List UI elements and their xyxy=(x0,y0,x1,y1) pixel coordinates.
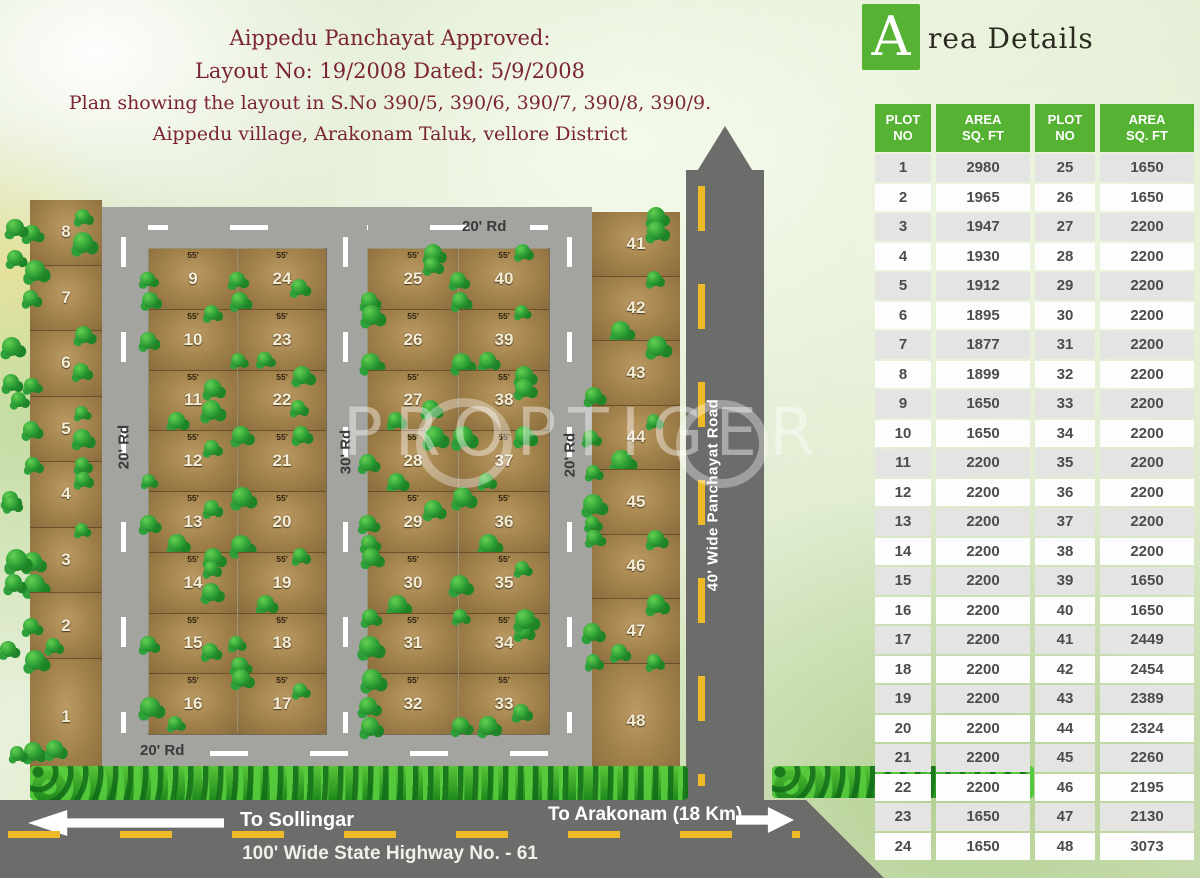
area-table-head-row: PLOT NOAREA SQ. FTPLOT NOAREA SQ. FT xyxy=(875,104,1194,152)
plot-dimension-label: 55' xyxy=(276,432,287,442)
tree-icon xyxy=(359,454,376,471)
tree-icon xyxy=(4,496,19,511)
plot-27: 55'27 xyxy=(368,370,458,431)
plot-43: 43 xyxy=(592,340,680,405)
table-row: 21965261650 xyxy=(875,184,1194,212)
plot-number: 3 xyxy=(61,550,70,570)
plot-47: 47 xyxy=(592,598,680,663)
plot-21: 55'21 xyxy=(238,430,326,491)
highway-center-dashes xyxy=(8,831,800,838)
tree-icon xyxy=(422,400,439,417)
tree-icon xyxy=(479,716,497,734)
tree-icon xyxy=(362,305,382,325)
tree-icon xyxy=(611,450,632,471)
tree-icon xyxy=(359,697,377,715)
tree-icon xyxy=(586,530,602,546)
plot-number: 24 xyxy=(273,269,292,289)
tree-icon xyxy=(10,746,24,760)
plot-number: 32 xyxy=(404,694,423,714)
plot-42: 42 xyxy=(592,276,680,341)
tree-icon xyxy=(515,561,529,575)
plot-dimension-label: 55' xyxy=(407,554,418,564)
tree-icon xyxy=(232,426,250,444)
table-row: 182200422454 xyxy=(875,656,1194,684)
plot-number: 41 xyxy=(627,234,646,254)
plot-33: 55'33 xyxy=(459,673,549,734)
road-right-label: 20' Rd xyxy=(562,433,579,477)
plot-dimension-label: 55' xyxy=(187,311,198,321)
plot-20: 55'20 xyxy=(238,491,326,552)
plot-dimension-label: 55' xyxy=(187,372,198,382)
area-table-header: PLOT NO xyxy=(1035,104,1095,152)
tree-icon xyxy=(142,474,155,487)
logo-letter: A xyxy=(872,10,911,64)
area-details-title: rea Details xyxy=(928,22,1094,55)
plot-number: 27 xyxy=(404,390,423,410)
plot-dimension-label: 55' xyxy=(498,311,509,321)
plot-23: 55'23 xyxy=(238,309,326,370)
tree-icon xyxy=(362,609,379,626)
tree-icon xyxy=(75,471,90,486)
plot-6: 6 xyxy=(30,330,102,396)
tree-icon xyxy=(75,326,93,344)
tree-icon xyxy=(585,387,602,404)
plot-25: 55'25 xyxy=(368,249,458,309)
plot-26: 55'26 xyxy=(368,309,458,370)
tree-icon xyxy=(424,500,442,518)
tree-icon xyxy=(293,426,309,442)
plot-number: 29 xyxy=(404,512,423,532)
plot-1: 1 xyxy=(30,658,102,775)
tree-icon xyxy=(362,669,382,689)
plot-number: 15 xyxy=(184,633,203,653)
area-table-body: 1298025165021965261650319472722004193028… xyxy=(875,154,1194,860)
tree-icon xyxy=(232,669,250,687)
table-row: 192200432389 xyxy=(875,685,1194,713)
plot-number: 33 xyxy=(495,694,514,714)
road-top-label: 20' Rd xyxy=(462,218,506,235)
plot-number: 46 xyxy=(627,556,646,576)
plot-number: 21 xyxy=(273,451,292,471)
plot-number: 2 xyxy=(61,616,70,636)
plot-4: 4 xyxy=(30,461,102,527)
plot-45: 45 xyxy=(592,469,680,534)
title-line-4: Aippedu village, Arakonam Taluk, vellore… xyxy=(55,123,725,145)
table-row: 231650472130 xyxy=(875,803,1194,831)
table-row: 142200382200 xyxy=(875,538,1194,566)
tree-icon xyxy=(204,305,219,320)
tree-icon xyxy=(515,609,535,629)
plot-number: 22 xyxy=(273,390,292,410)
plot-dimension-label: 55' xyxy=(407,493,418,503)
plot-number: 7 xyxy=(61,288,70,308)
plot-16: 55'16 xyxy=(149,673,237,734)
direction-east-label: To Arakonam (18 Km) xyxy=(548,804,742,826)
plot-31: 55'31 xyxy=(368,613,458,674)
table-row: 162200401650 xyxy=(875,597,1194,625)
tree-icon xyxy=(142,292,158,308)
tree-icon xyxy=(611,644,627,660)
tree-icon xyxy=(515,426,534,445)
plot-41: 41 xyxy=(592,212,680,276)
plot-35: 55'35 xyxy=(459,552,549,613)
plot-48: 48 xyxy=(592,663,680,778)
tree-icon xyxy=(450,272,466,288)
plot-number: 8 xyxy=(61,222,70,242)
plot-29: 55'29 xyxy=(368,491,458,552)
plot-18: 55'18 xyxy=(238,613,326,674)
plot-number: 25 xyxy=(404,269,423,289)
block-b-left-column: 55'2555'2655'2755'2855'2955'3055'3155'32 xyxy=(368,249,458,734)
tree-icon xyxy=(647,221,666,240)
tree-icon xyxy=(453,609,467,623)
table-row: 51912292200 xyxy=(875,272,1194,300)
plot-number: 28 xyxy=(404,451,423,471)
plot-12: 55'12 xyxy=(149,430,237,491)
tree-icon xyxy=(229,272,245,288)
road-dashes xyxy=(343,237,348,747)
plot-dimension-label: 55' xyxy=(187,615,198,625)
table-row: 61895302200 xyxy=(875,302,1194,330)
tree-icon xyxy=(6,219,24,237)
plot-number: 31 xyxy=(404,633,423,653)
block-a: 55'955'1055'1155'1255'1355'1455'1555'16 … xyxy=(148,248,327,735)
plot-number: 42 xyxy=(627,298,646,318)
plot-dimension-label: 55' xyxy=(498,675,509,685)
road-dashes xyxy=(210,751,580,756)
plot-14: 55'14 xyxy=(149,552,237,613)
plot-dimension-label: 55' xyxy=(187,675,198,685)
state-highway: To Sollingar To Arakonam (18 Km) 100' Wi… xyxy=(0,800,884,878)
block-a-left-column: 55'955'1055'1155'1255'1355'1455'1555'16 xyxy=(149,249,237,734)
plot-number: 44 xyxy=(627,427,646,447)
tree-icon xyxy=(73,363,89,379)
plot-dimension-label: 55' xyxy=(498,432,509,442)
plot-5: 5 xyxy=(30,396,102,462)
panchayat-road-label: 40' Wide Panchayat Road xyxy=(705,399,722,592)
tree-icon xyxy=(46,638,61,653)
plot-number: 4 xyxy=(61,484,70,504)
plot-number: 19 xyxy=(273,573,292,593)
plot-number: 45 xyxy=(627,492,646,512)
direction-west-label: To Sollingar xyxy=(240,809,354,832)
plot-number: 18 xyxy=(273,633,292,653)
area-table-header: AREA SQ. FT xyxy=(1100,104,1194,152)
tree-icon xyxy=(257,595,274,612)
plot-46: 46 xyxy=(592,534,680,599)
panchayat-road xyxy=(686,170,764,802)
tree-icon xyxy=(231,292,248,309)
plot-dimension-label: 55' xyxy=(276,250,287,260)
tree-icon xyxy=(293,366,312,385)
tree-icon xyxy=(583,430,598,445)
tree-icon xyxy=(7,250,23,266)
plot-number: 20 xyxy=(273,512,292,532)
plot-dimension-label: 55' xyxy=(407,432,418,442)
plot-dimension-label: 55' xyxy=(276,554,287,564)
plot-dimension-label: 55' xyxy=(187,493,198,503)
table-row: 122200362200 xyxy=(875,479,1194,507)
plot-32: 55'32 xyxy=(368,673,458,734)
plot-dimension-label: 55' xyxy=(407,372,418,382)
plot-dimension-label: 55' xyxy=(276,311,287,321)
tree-icon xyxy=(583,494,603,514)
tree-icon xyxy=(362,548,380,566)
table-row: 101650342200 xyxy=(875,420,1194,448)
tree-icon xyxy=(204,561,219,576)
area-table-header: AREA SQ. FT xyxy=(936,104,1030,152)
plot-39: 55'39 xyxy=(459,309,549,370)
title-block: Aippedu Panchayat Approved: Layout No: 1… xyxy=(55,26,725,154)
tree-icon xyxy=(585,516,599,530)
tree-icon xyxy=(0,641,16,657)
road-dashes xyxy=(121,237,126,747)
plot-dimension-label: 55' xyxy=(407,250,418,260)
tree-icon xyxy=(6,549,27,570)
plot-number: 37 xyxy=(495,451,514,471)
table-row: 41930282200 xyxy=(875,243,1194,271)
plot-number: 38 xyxy=(495,390,514,410)
tree-icon xyxy=(361,717,379,735)
plot-number: 14 xyxy=(184,573,203,593)
tree-icon xyxy=(611,321,630,340)
tree-icon xyxy=(647,594,666,613)
plot-19: 55'19 xyxy=(238,552,326,613)
tree-icon xyxy=(293,548,308,563)
plot-17: 55'17 xyxy=(238,673,326,734)
area-table: PLOT NOAREA SQ. FTPLOT NOAREA SQ. FT 129… xyxy=(870,102,1199,862)
tree-icon xyxy=(583,623,601,641)
tree-icon xyxy=(293,683,307,697)
plot-number: 34 xyxy=(495,633,514,653)
plot-number: 36 xyxy=(495,512,514,532)
plot-dimension-label: 55' xyxy=(498,372,509,382)
tree-icon xyxy=(168,534,186,552)
title-line-3: Plan showing the layout in S.No 390/5, 3… xyxy=(55,92,725,114)
plot-36: 55'36 xyxy=(459,491,549,552)
tree-icon xyxy=(515,244,530,259)
right-plot-strip: 4142434445464748 xyxy=(592,212,680,778)
tree-icon xyxy=(168,412,185,429)
tree-icon xyxy=(647,654,662,669)
plot-number: 35 xyxy=(495,573,514,593)
table-row: 12980251650 xyxy=(875,154,1194,182)
left-plot-strip: 87654321 xyxy=(30,200,102,775)
tree-icon xyxy=(202,583,220,601)
plot-number: 13 xyxy=(184,512,203,532)
table-row: 152200391650 xyxy=(875,567,1194,595)
tree-icon xyxy=(140,515,157,532)
tree-icon xyxy=(3,374,19,390)
plot-3: 3 xyxy=(30,527,102,593)
tree-icon xyxy=(257,352,272,367)
plot-38: 55'38 xyxy=(459,370,549,431)
road-dashes xyxy=(567,237,572,747)
plot-22: 55'22 xyxy=(238,370,326,431)
plot-dimension-label: 55' xyxy=(187,250,198,260)
table-row: 31947272200 xyxy=(875,213,1194,241)
tree-icon xyxy=(452,292,469,309)
tree-icon xyxy=(586,654,600,668)
tree-icon xyxy=(46,740,63,757)
block-b: 55'2555'2655'2755'2855'2955'3055'3155'32… xyxy=(367,248,550,735)
tree-icon xyxy=(140,636,156,652)
plot-dimension-label: 55' xyxy=(187,432,198,442)
plot-dimension-label: 55' xyxy=(276,675,287,685)
plot-dimension-label: 55' xyxy=(276,372,287,382)
plot-number: 12 xyxy=(184,451,203,471)
tree-icon xyxy=(586,465,600,479)
tree-icon xyxy=(140,697,160,717)
plot-15: 55'15 xyxy=(149,613,237,674)
edge-trees xyxy=(0,195,30,805)
title-line-2: Layout No: 19/2008 Dated: 5/9/2008 xyxy=(55,59,725,83)
plot-10: 55'10 xyxy=(149,309,237,370)
tree-icon xyxy=(479,352,497,370)
tree-icon xyxy=(647,271,661,285)
plot-number: 40 xyxy=(495,269,514,289)
plot-number: 1 xyxy=(61,707,70,727)
plot-13: 55'13 xyxy=(149,491,237,552)
tree-icon xyxy=(450,575,469,594)
plot-number: 26 xyxy=(404,330,423,350)
plot-9: 55'9 xyxy=(149,249,237,309)
road-left xyxy=(100,207,148,775)
table-row: 172200412449 xyxy=(875,626,1194,654)
tree-icon xyxy=(75,457,90,472)
plot-dimension-label: 55' xyxy=(407,615,418,625)
table-row: 112200352200 xyxy=(875,449,1194,477)
plot-number: 17 xyxy=(273,694,292,714)
plot-number: 10 xyxy=(184,330,203,350)
tree-icon xyxy=(202,400,222,420)
plot-dimension-label: 55' xyxy=(187,554,198,564)
plot-2: 2 xyxy=(30,592,102,658)
area-table-header: PLOT NO xyxy=(875,104,931,152)
tree-icon xyxy=(73,429,91,447)
table-row: 222200462195 xyxy=(875,774,1194,802)
plot-dimension-label: 55' xyxy=(407,675,418,685)
plot-11: 55'11 xyxy=(149,370,237,431)
tree-icon xyxy=(75,523,88,536)
tree-icon xyxy=(647,530,665,548)
tree-icon xyxy=(168,716,182,730)
tree-icon xyxy=(515,305,528,318)
tree-icon xyxy=(424,257,440,273)
plot-34: 55'34 xyxy=(459,613,549,674)
tree-icon xyxy=(453,426,474,447)
table-row: 241650483073 xyxy=(875,833,1194,861)
plot-number: 39 xyxy=(495,330,514,350)
tree-icon xyxy=(75,406,88,419)
tree-icon xyxy=(424,426,444,446)
tree-icon xyxy=(2,337,21,356)
tree-icon xyxy=(647,336,667,356)
tree-icon xyxy=(204,440,219,455)
road-bottom-label: 20' Rd xyxy=(140,742,184,759)
road-middle xyxy=(325,207,367,775)
tree-icon xyxy=(140,332,156,348)
tree-icon xyxy=(359,515,376,532)
plot-number: 11 xyxy=(184,390,202,410)
tree-icon xyxy=(359,636,380,657)
plot-dimension-label: 55' xyxy=(276,615,287,625)
table-row: 71877312200 xyxy=(875,331,1194,359)
area-details-logo: A xyxy=(862,4,920,70)
plot-number: 30 xyxy=(404,573,423,593)
table-row: 132200372200 xyxy=(875,508,1194,536)
road-left-label: 20' Rd xyxy=(116,425,133,469)
tree-icon xyxy=(388,473,405,490)
plot-number: 48 xyxy=(627,711,646,731)
table-row: 212200452260 xyxy=(875,744,1194,772)
table-row: 81899322200 xyxy=(875,361,1194,389)
plot-dimension-label: 55' xyxy=(498,493,509,503)
table-row: 91650332200 xyxy=(875,390,1194,418)
block-b-right-column: 55'4055'3955'3855'3755'3655'3555'3455'33 xyxy=(458,249,549,734)
plot-44: 44 xyxy=(592,405,680,470)
plot-dimension-label: 55' xyxy=(498,250,509,260)
plot-40: 55'40 xyxy=(459,249,549,309)
plot-number: 6 xyxy=(61,353,70,373)
tree-icon xyxy=(73,232,93,252)
tree-icon xyxy=(479,534,498,553)
tree-icon xyxy=(231,353,245,367)
tree-icon xyxy=(513,704,529,720)
tree-icon xyxy=(388,595,408,615)
tree-icon xyxy=(232,487,252,507)
tree-icon xyxy=(452,717,469,734)
tree-icon xyxy=(204,500,220,516)
tree-icon xyxy=(140,272,155,287)
tree-icon xyxy=(229,636,242,649)
tree-icon xyxy=(75,209,90,224)
plot-30: 55'30 xyxy=(368,552,458,613)
plot-dimension-label: 55' xyxy=(407,311,418,321)
title-line-1: Aippedu Panchayat Approved: xyxy=(55,26,725,50)
tree-icon xyxy=(291,400,305,414)
plot-number: 47 xyxy=(627,621,646,641)
tree-icon xyxy=(388,412,403,427)
tree-icon xyxy=(647,414,661,428)
tree-icon xyxy=(5,574,23,592)
plot-24: 55'24 xyxy=(238,249,326,309)
tree-icon xyxy=(515,379,533,397)
arrow-right-icon xyxy=(736,807,794,833)
plot-number: 5 xyxy=(61,419,70,439)
plot-number: 9 xyxy=(188,269,197,289)
road-middle-label: 30' Rd xyxy=(338,430,355,474)
plot-number: 43 xyxy=(627,363,646,383)
tree-icon xyxy=(453,487,473,507)
plot-7: 7 xyxy=(30,265,102,331)
plot-dimension-label: 55' xyxy=(498,554,509,564)
plot-number: 23 xyxy=(273,330,292,350)
plot-28: 55'28 xyxy=(368,430,458,491)
road-right xyxy=(548,207,592,775)
table-row: 202200442324 xyxy=(875,715,1194,743)
block-a-right-column: 55'2455'2355'2255'2155'2055'1955'1855'17 xyxy=(237,249,326,734)
plot-8: 8 xyxy=(30,200,102,265)
plot-dimension-label: 55' xyxy=(498,615,509,625)
highway-label: 100' Wide State Highway No. - 61 xyxy=(150,843,630,865)
tree-icon xyxy=(202,643,218,659)
plot-dimension-label: 55' xyxy=(276,493,287,503)
tree-icon xyxy=(204,379,222,397)
layout-plan-image: Aippedu Panchayat Approved: Layout No: 1… xyxy=(0,0,1200,878)
plot-37: 55'37 xyxy=(459,430,549,491)
tree-icon xyxy=(479,473,494,488)
